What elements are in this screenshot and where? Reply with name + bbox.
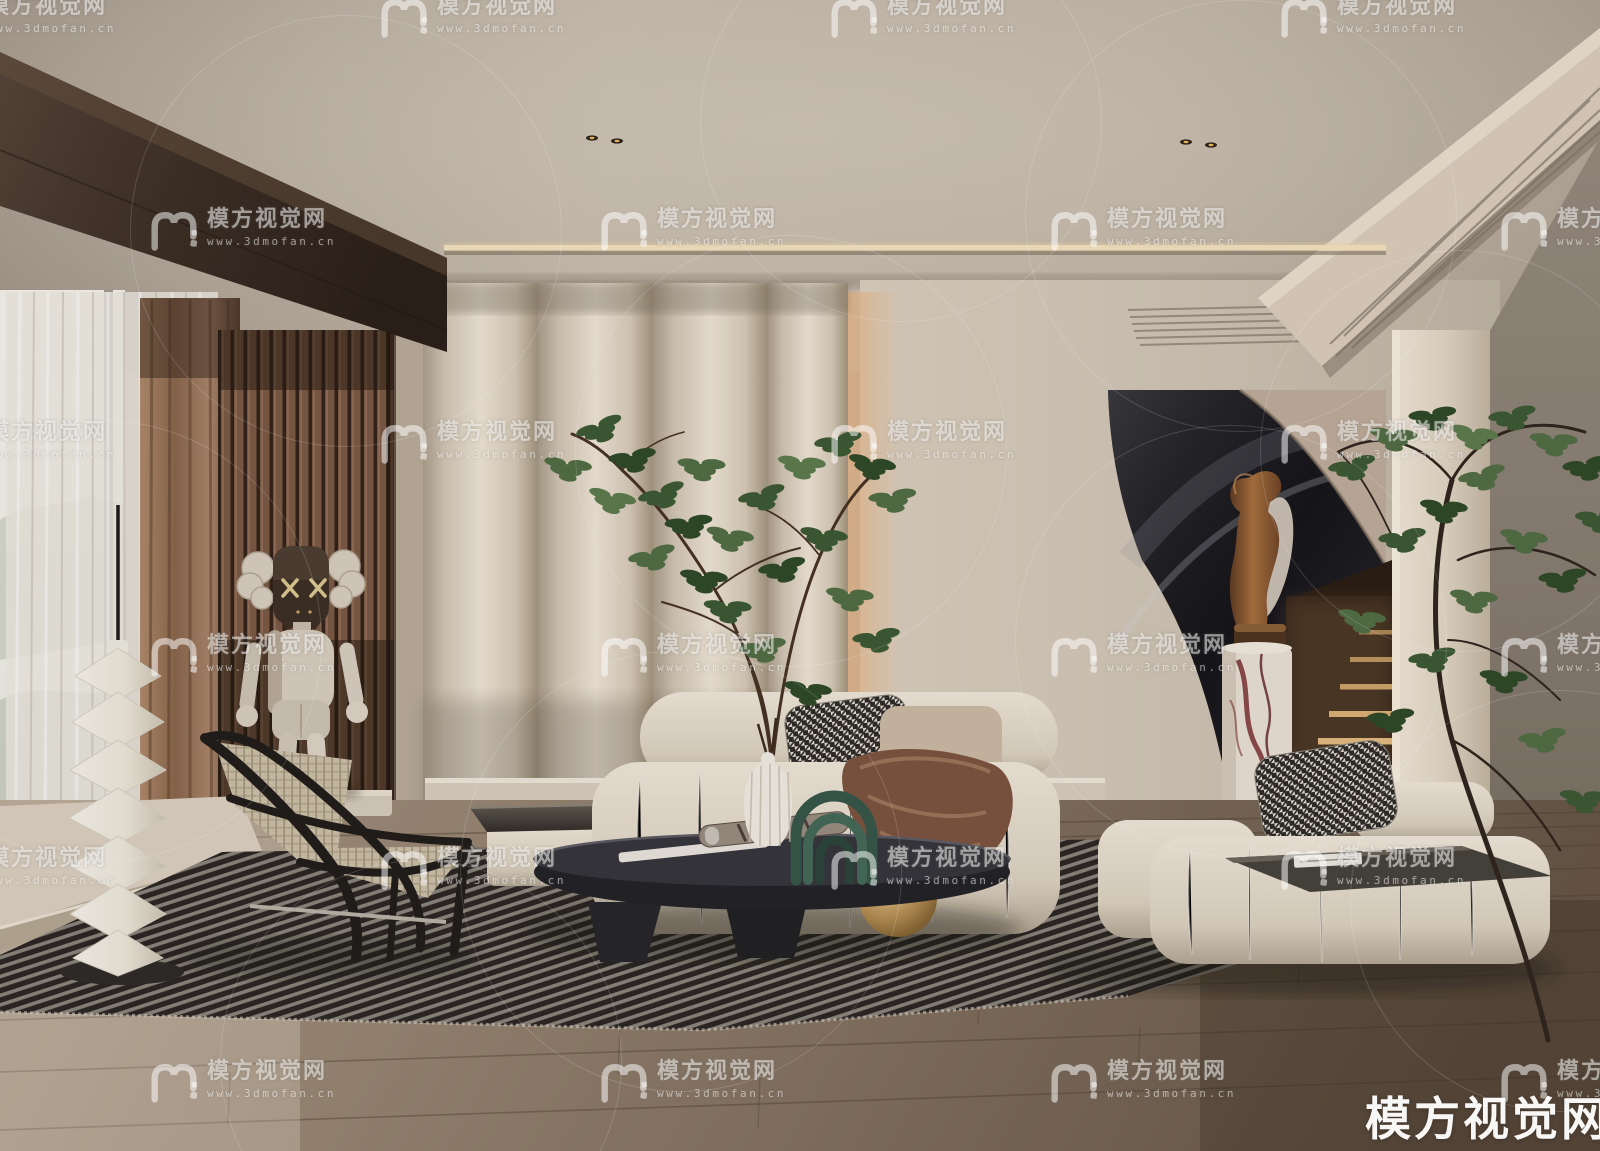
vignette [0, 0, 1600, 1151]
interior-render-screenshot: 模方视觉网 www.3dmofan.cn 模方视觉网 www.3dmofan.c… [0, 0, 1600, 1151]
living-room-3d-render [0, 0, 1600, 1151]
